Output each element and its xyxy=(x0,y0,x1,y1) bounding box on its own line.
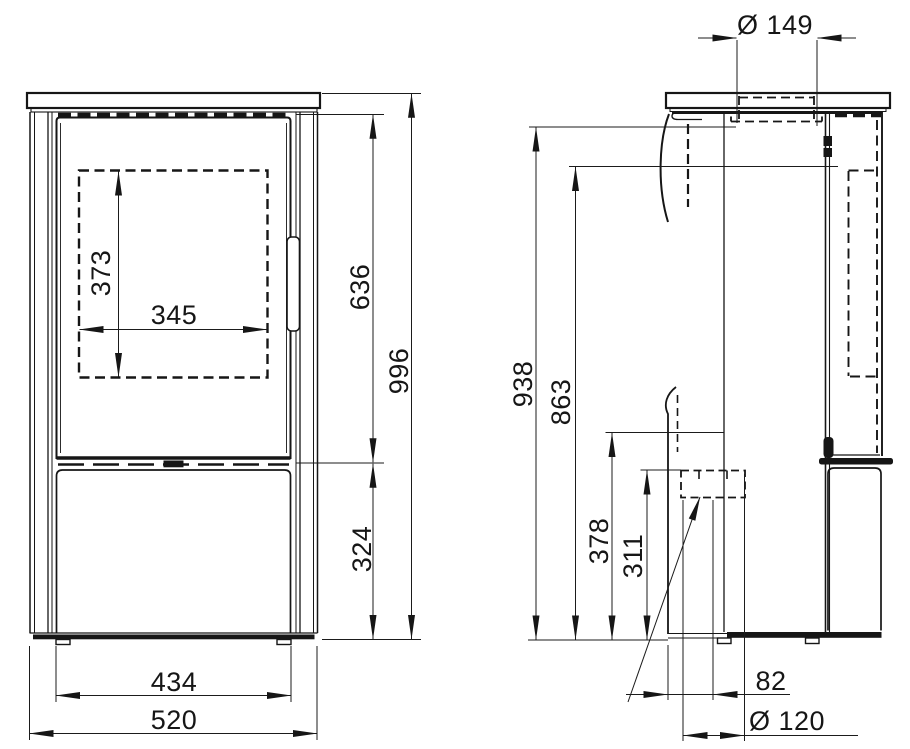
front-feet-width-label: 434 xyxy=(151,667,198,697)
front-lower-panel xyxy=(57,470,291,633)
dim-feet-width: 434 xyxy=(56,667,291,697)
side-left-foot xyxy=(718,638,732,644)
dim-outlet-top-height: 378 xyxy=(584,433,614,640)
side-hinge-top2 xyxy=(824,148,833,157)
side-top-plate xyxy=(666,93,890,108)
side-outlet-center-height-label: 311 xyxy=(618,534,648,579)
front-dimensions: 373 345 636 324 996 xyxy=(30,94,422,741)
side-hinge-top xyxy=(824,136,833,146)
dim-outlet-center-height: 311 xyxy=(618,471,648,640)
dim-body-top-height: 938 xyxy=(508,128,538,640)
dim-door-height: 636 xyxy=(345,115,375,463)
side-view: Ø 149 938 863 378 311 xyxy=(508,10,893,741)
front-top-plate xyxy=(27,93,320,108)
dim-window-height: 373 xyxy=(86,172,119,378)
side-rear-pipe-height-label: 863 xyxy=(546,379,576,426)
side-body-top-height-label: 938 xyxy=(508,361,538,408)
front-window-width-label: 345 xyxy=(151,300,198,330)
front-structure xyxy=(27,93,320,645)
rear-outlet-box xyxy=(681,471,745,498)
side-shelf-band xyxy=(819,458,893,465)
side-base-band xyxy=(727,632,882,638)
side-back-curve-top xyxy=(661,114,669,222)
dim-total-height: 996 xyxy=(384,94,414,639)
stove-dimension-drawing: 373 345 636 324 996 xyxy=(0,0,910,749)
side-right-foot xyxy=(806,638,820,644)
side-structure xyxy=(628,93,893,702)
dim-total-width: 520 xyxy=(30,705,318,735)
dim-window-width: 345 xyxy=(80,300,268,330)
drawing-canvas: 373 345 636 324 996 xyxy=(0,0,910,749)
front-view: 373 345 636 324 996 xyxy=(27,93,421,740)
side-outlet-top-height-label: 378 xyxy=(584,518,614,565)
front-latch xyxy=(164,461,184,468)
side-outlet-offset-label: 82 xyxy=(755,666,786,696)
front-total-width-label: 520 xyxy=(151,705,198,735)
front-total-height-label: 996 xyxy=(384,348,414,395)
rear-outlet-leader-arrow xyxy=(628,497,700,702)
side-lower-panel xyxy=(828,468,881,631)
dim-outlet-diameter: Ø 120 xyxy=(683,706,858,736)
front-left-foot xyxy=(56,640,70,645)
dim-flue-diameter: Ø 149 xyxy=(698,10,856,40)
dim-rear-pipe-height: 863 xyxy=(546,167,576,640)
side-outlet-diameter-label: Ø 120 xyxy=(749,706,825,736)
front-base-height-label: 324 xyxy=(347,526,377,573)
side-flue-diameter-label: Ø 149 xyxy=(737,10,813,40)
front-window-height-label: 373 xyxy=(86,250,116,297)
dim-base-height: 324 xyxy=(347,464,377,639)
front-base-band xyxy=(33,635,315,640)
side-back-edge-lower xyxy=(666,387,676,634)
front-right-foot xyxy=(277,640,291,645)
front-door-handle xyxy=(287,237,300,331)
dim-outlet-offset: 82 xyxy=(626,666,790,696)
front-door-height-label: 636 xyxy=(345,264,375,311)
side-rear-outlet-hidden xyxy=(681,471,745,498)
